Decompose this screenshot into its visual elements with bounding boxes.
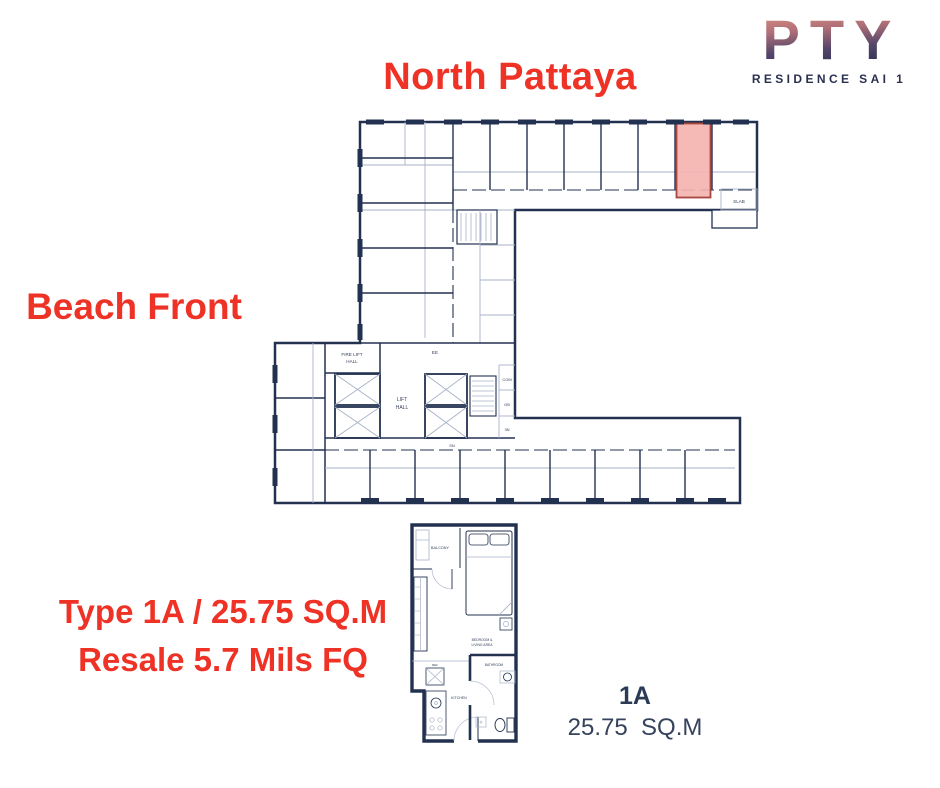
offer-line-2: Resale 5.7 Mils FQ: [20, 636, 426, 684]
building-floor-plan: SLAB: [265, 110, 765, 512]
lift-hall-label-2: HALL: [396, 405, 409, 411]
label-beach-front: Beach Front: [8, 286, 260, 328]
ref-label: REF: [432, 663, 438, 667]
balcony-label: BALCONY: [431, 546, 450, 550]
unit-caption: 1A 25.75 SQ.M: [540, 682, 730, 742]
brand-logo: PTY RESIDENCE SAI 1: [748, 12, 910, 86]
label-north-pattaya: North Pattaya: [320, 56, 700, 99]
bedroom-label-1: BEDROOM &: [472, 638, 493, 642]
unit-type-label: 1A: [540, 682, 730, 711]
3n-room-label: 3N: [504, 427, 509, 432]
sn-label: SN: [449, 443, 455, 448]
fire-lift-hall-label-2: HALL: [346, 359, 358, 364]
offer-line-1: Type 1A / 25.75 SQ.M: [20, 588, 426, 636]
flyer-page: North Pattaya Beach Front Type 1A / 25.7…: [0, 0, 940, 788]
unit-detail-plan: BALCONY BEDROOM & LIVING AREA: [402, 521, 524, 749]
lift-hall-label-1: LIFT: [397, 397, 407, 403]
highlighted-unit-1a: [677, 124, 711, 198]
offer-text: Type 1A / 25.75 SQ.M Resale 5.7 Mils FQ: [20, 588, 426, 684]
gb-room-label: GB: [504, 402, 510, 407]
bathroom-label: BATHROOM: [485, 663, 504, 667]
ee-room-label: EE: [432, 350, 438, 355]
bedroom-label-2: LIVING AREA: [471, 643, 493, 647]
stairs-top: [457, 210, 497, 244]
slab-label: SLAB: [733, 199, 745, 204]
unit-outline: [412, 525, 516, 741]
stairs-core: [470, 376, 496, 416]
brand-name: PTY: [748, 12, 910, 68]
brand-subtitle: RESIDENCE SAI 1: [748, 72, 910, 86]
fire-lift-hall-label-1: FIRE LIFT: [341, 352, 362, 357]
com-room-label: COM: [502, 377, 511, 382]
corner-room: [712, 210, 757, 228]
unit-area-label: 25.75 SQ.M: [540, 714, 730, 742]
kitchen-label: KITCHEN: [451, 696, 467, 700]
